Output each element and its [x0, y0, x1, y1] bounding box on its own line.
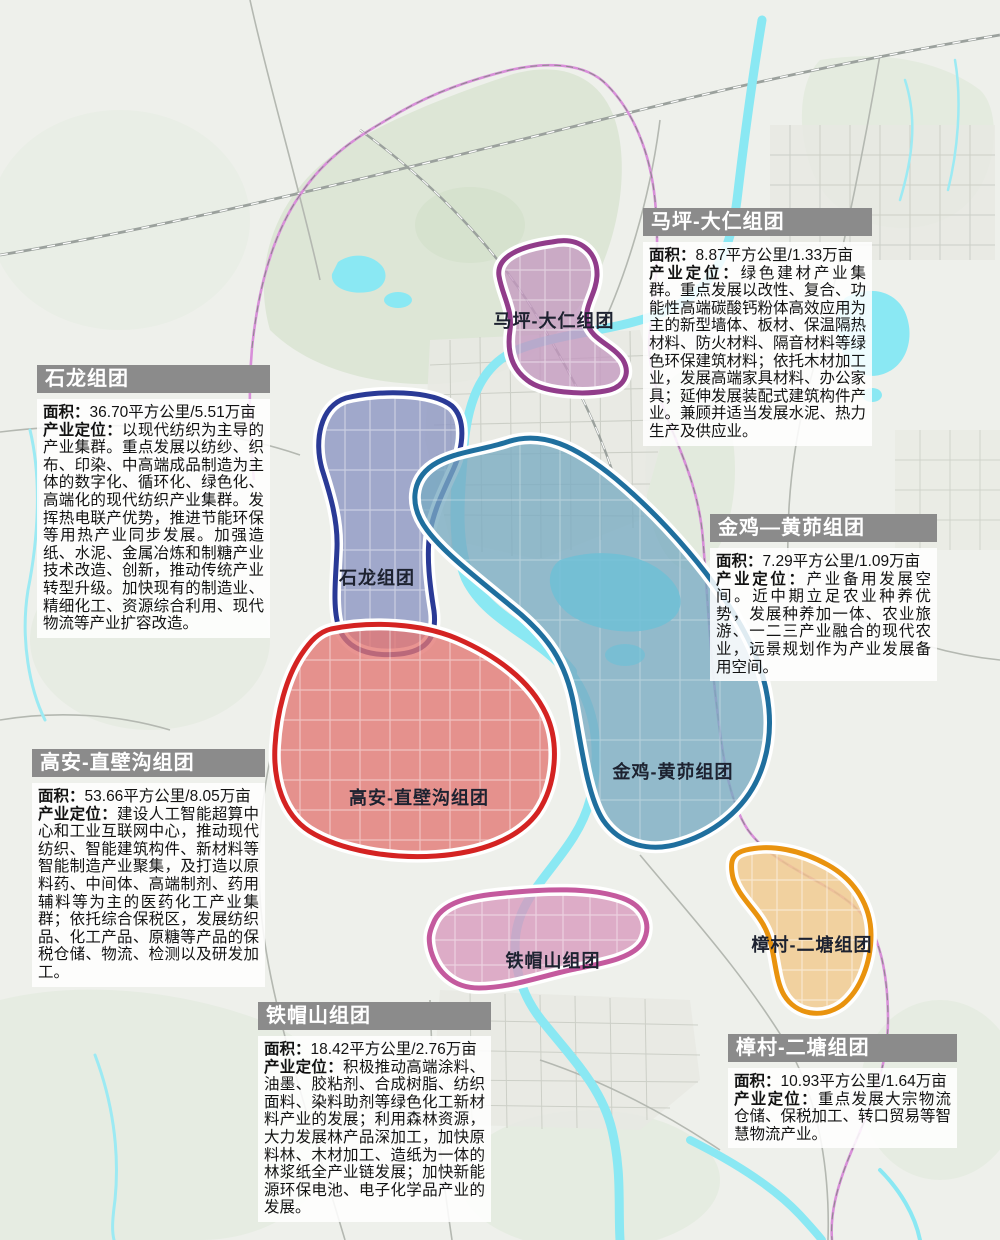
map-label-zhangcun-ertang: 樟村-二塘组团 [752, 931, 873, 957]
panel-title: 马坪-大仁组团 [643, 208, 872, 236]
panel-title: 金鸡—黄茆组团 [710, 514, 937, 542]
panel-body: 面积：10.93平方公里/1.64万亩 产业定位：重点发展大宗物流仓储、保税加工… [728, 1068, 957, 1148]
map-label-tiemaoshan: 铁帽山组团 [506, 947, 601, 973]
panel-body: 面积：7.29平方公里/1.09万亩 产业定位：产业备用发展空间。近中期立足农业… [710, 548, 937, 681]
area-value: 10.93平方公里/1.64万亩 [781, 1073, 947, 1090]
panel-body: 面积：53.66平方公里/8.05万亩 产业定位：建设人工智能超算中心和工业互联… [32, 783, 265, 987]
area-label: 面积： [734, 1073, 781, 1090]
panel-title: 高安-直壁沟组团 [32, 749, 265, 777]
area-label: 面积： [649, 247, 696, 264]
map-label-shilong: 石龙组团 [339, 564, 415, 590]
panel-gaoan-zhibigou: 高安-直壁沟组团 面积：53.66平方公里/8.05万亩 产业定位：建设人工智能… [32, 749, 265, 987]
area-value: 7.29平方公里/1.09万亩 [763, 553, 921, 570]
planning-map-poster: 马坪-大仁组团 石龙组团 金鸡-黄茆组团 高安-直壁沟组团 铁帽山组团 樟村-二… [0, 0, 1000, 1240]
area-label: 面积： [264, 1041, 311, 1058]
positioning-label: 产业定位： [43, 422, 122, 439]
positioning-text: 积极推动高端涂料、油墨、胶粘剂、合成树脂、纺织面料、染料助剂等绿色化工新材料产业… [264, 1059, 485, 1217]
area-value: 18.42平方公里/2.76万亩 [311, 1041, 477, 1058]
area-value: 53.66平方公里/8.05万亩 [85, 788, 251, 805]
positioning-label: 产业定位： [649, 265, 741, 282]
panel-title: 铁帽山组团 [258, 1002, 491, 1030]
map-label-gaoan-zhibigou: 高安-直壁沟组团 [349, 784, 489, 810]
positioning-label: 产业定位： [264, 1059, 343, 1076]
positioning-text: 建设人工智能超算中心和工业互联网中心，推动现代纺织、智能建筑构件、新材料等智能制… [38, 806, 259, 981]
positioning-label: 产业定位： [38, 806, 117, 823]
positioning-label: 产业定位： [716, 571, 807, 588]
panel-body: 面积：18.42平方公里/2.76万亩 产业定位：积极推动高端涂料、油墨、胶粘剂… [258, 1036, 491, 1222]
panel-maping-daren: 马坪-大仁组团 面积：8.87平方公里/1.33万亩 产业定位：绿色建材产业集群… [643, 208, 872, 446]
panel-shilong: 石龙组团 面积：36.70平方公里/5.51万亩 产业定位：以现代纺织为主导的产… [37, 365, 270, 638]
panel-title: 石龙组团 [37, 365, 270, 393]
panel-zhangcun-ertang: 樟村-二塘组团 面积：10.93平方公里/1.64万亩 产业定位：重点发展大宗物… [728, 1034, 957, 1148]
panel-body: 面积：36.70平方公里/5.51万亩 产业定位：以现代纺织为主导的产业集群。重… [37, 399, 270, 638]
area-label: 面积： [43, 404, 90, 421]
area-label: 面积： [38, 788, 85, 805]
positioning-label: 产业定位： [734, 1091, 818, 1108]
map-label-maping-daren: 马坪-大仁组团 [494, 307, 615, 333]
area-value: 8.87平方公里/1.33万亩 [696, 247, 854, 264]
panel-jinji-huangmao: 金鸡—黄茆组团 面积：7.29平方公里/1.09万亩 产业定位：产业备用发展空间… [710, 514, 937, 681]
positioning-text: 绿色建材产业集群。重点发展以改性、复合、功能性高端碳酸钙粉体高效应用为主的新型墙… [649, 265, 866, 440]
panel-tiemaoshan: 铁帽山组团 面积：18.42平方公里/2.76万亩 产业定位：积极推动高端涂料、… [258, 1002, 491, 1222]
positioning-text: 以现代纺织为主导的产业集群。重点发展以纺纱、织布、印染、中高端成品制造为主体的数… [43, 422, 264, 633]
panel-title: 樟村-二塘组团 [728, 1034, 957, 1062]
map-label-jinji-huangmao: 金鸡-黄茆组团 [613, 758, 734, 784]
area-label: 面积： [716, 553, 763, 570]
panel-body: 面积：8.87平方公里/1.33万亩 产业定位：绿色建材产业集群。重点发展以改性… [643, 242, 872, 446]
area-value: 36.70平方公里/5.51万亩 [90, 404, 256, 421]
